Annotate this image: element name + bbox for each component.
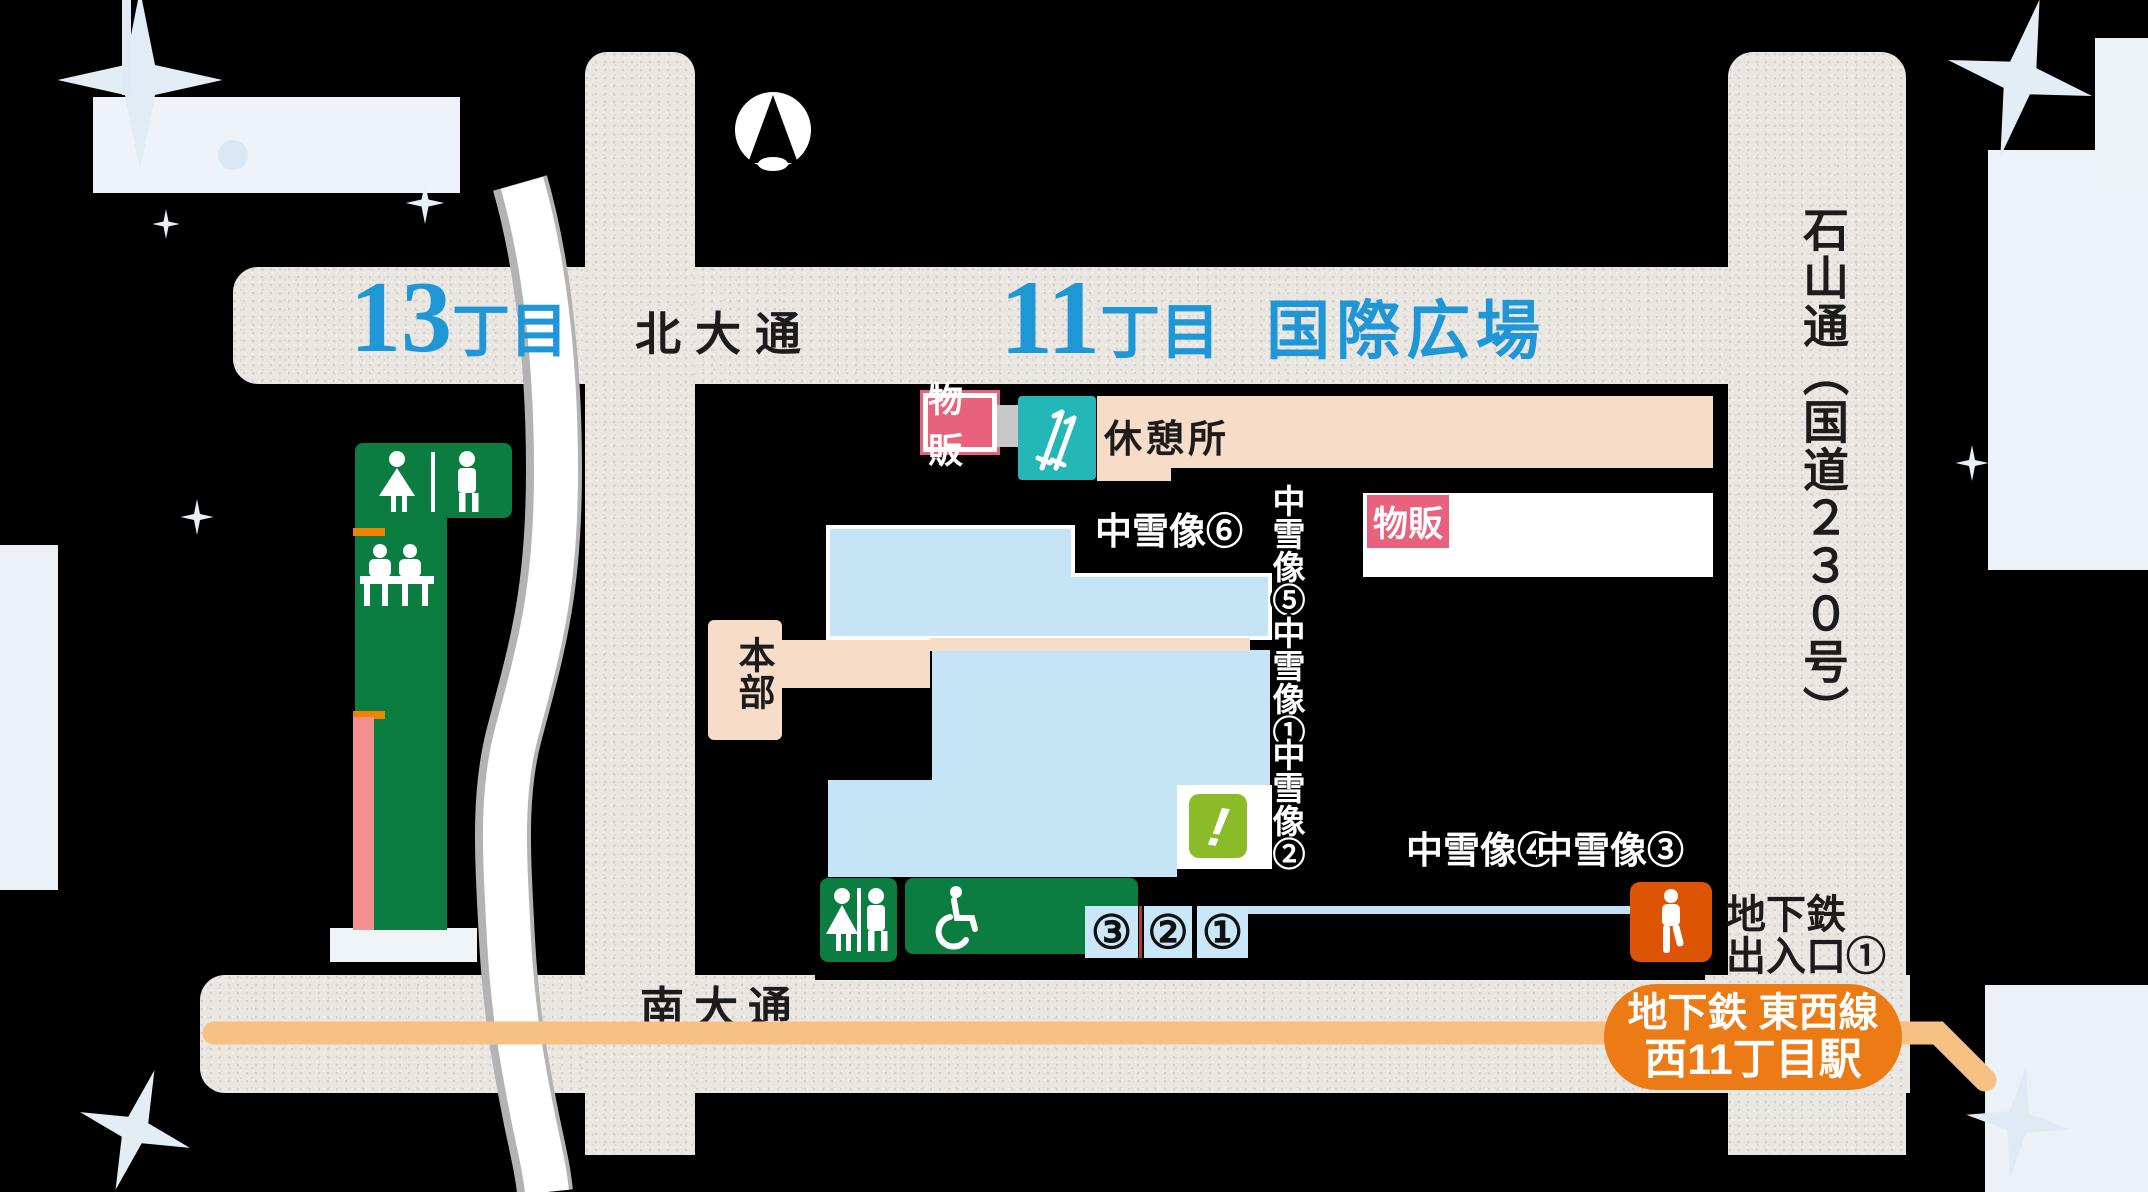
station-pill: 地下鉄 東西線 西11丁目駅 bbox=[1604, 984, 1902, 1090]
station-name-line2: 西11丁目駅 bbox=[1644, 1036, 1861, 1084]
festival-site-map: 13丁目 11丁目 国際広場 北大通 南大通 石山通（国道２３０号） bbox=[0, 0, 2148, 1192]
station-name-line1: 地下鉄 東西線 bbox=[1627, 990, 1878, 1036]
